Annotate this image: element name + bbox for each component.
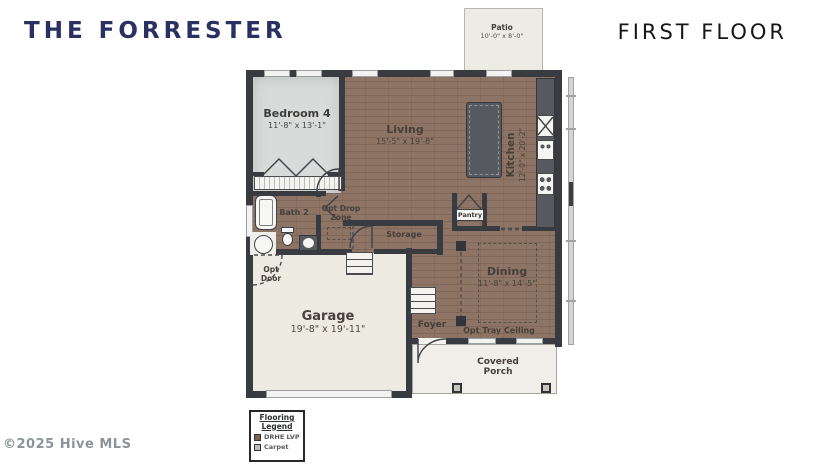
legend-title: Flooring Legend — [254, 414, 300, 431]
front-door-opening — [418, 338, 446, 344]
trim-tick — [566, 95, 576, 97]
side-trim-dark — [569, 182, 573, 206]
room-label-garage: Garage 19'-8" x 19'-11" — [291, 310, 366, 336]
room-label-dining: Dining 11'-8" x 14'-5" — [478, 266, 536, 288]
wall-storage-right — [437, 220, 443, 255]
trim-tick — [566, 128, 576, 130]
patio-area — [464, 8, 543, 74]
opt-drop-zone-bench — [327, 227, 351, 240]
sink-basin — [303, 238, 314, 248]
room-label-patio: Patio 10'-0" x 8'-0" — [481, 24, 524, 40]
window-dining — [516, 338, 543, 344]
room-label-bath2: Bath 2 — [279, 208, 308, 217]
trim-tick — [566, 300, 576, 302]
wall — [246, 250, 253, 398]
watermark: ©2025 Hive MLS — [3, 437, 131, 452]
window — [264, 70, 290, 77]
room-label-living: Living 15'-5" x 19'-8" — [376, 124, 434, 146]
stairs-foyer — [410, 287, 436, 314]
porch-post — [541, 383, 551, 393]
wall — [406, 248, 412, 398]
porch-post — [452, 383, 462, 393]
flooring-legend: Flooring Legend DRHE LVP Carpet — [249, 410, 305, 462]
water-heater — [254, 235, 273, 254]
carpet-swatch — [254, 444, 261, 451]
wall — [555, 70, 562, 347]
label-opt-tray-ceiling: Opt Tray Ceiling — [463, 326, 535, 335]
garage-door — [266, 390, 392, 398]
plan-title: THE FORRESTER — [24, 18, 287, 44]
trim-tick — [566, 240, 576, 242]
room-label-bedroom4: Bedroom 4 11'-8" x 13'-1" — [263, 108, 330, 130]
legend-row-lvp: DRHE LVP — [254, 433, 300, 441]
room-label-opt-drop-zone: Opt Drop Zone — [319, 205, 363, 222]
window-dining — [468, 338, 496, 344]
side-trim — [568, 77, 574, 345]
wall-bath-right — [316, 191, 321, 197]
kitchen-island — [466, 102, 502, 178]
room-label-covered-porch: Covered Porch — [468, 357, 528, 378]
patio-door — [486, 70, 512, 77]
bathtub — [255, 195, 277, 230]
room-label-storage: Storage — [386, 230, 422, 239]
wall — [246, 70, 562, 77]
window — [352, 70, 378, 77]
toilet — [282, 233, 293, 246]
room-label-pantry: Pantry — [456, 209, 484, 221]
column-post — [456, 241, 466, 251]
wall-garage-top — [374, 249, 443, 254]
cooktop-appliance — [537, 173, 554, 195]
closet-shelf — [254, 176, 342, 190]
legend-label: Carpet — [264, 443, 289, 451]
floor-title: FIRST FLOOR — [618, 20, 787, 44]
legend-label: DRHE LVP — [264, 433, 300, 441]
room-label-foyer: Foyer — [418, 320, 446, 330]
sink-appliance — [537, 140, 554, 160]
column-post — [456, 316, 466, 326]
window — [296, 70, 322, 77]
window — [430, 70, 454, 77]
wall-kitchen-dining — [452, 226, 500, 231]
range-appliance — [537, 115, 554, 137]
room-label-kitchen: Kitchen 12'-0" x 20'-2" — [505, 128, 527, 182]
floorplan-canvas: THE FORRESTER FIRST FLOOR Patio 10'-0" x… — [0, 0, 825, 467]
label-opt-door: Opt Door — [255, 266, 287, 283]
stairs-garage-entry — [346, 252, 373, 275]
lvp-swatch — [254, 434, 261, 441]
legend-row-carpet: Carpet — [254, 443, 300, 451]
